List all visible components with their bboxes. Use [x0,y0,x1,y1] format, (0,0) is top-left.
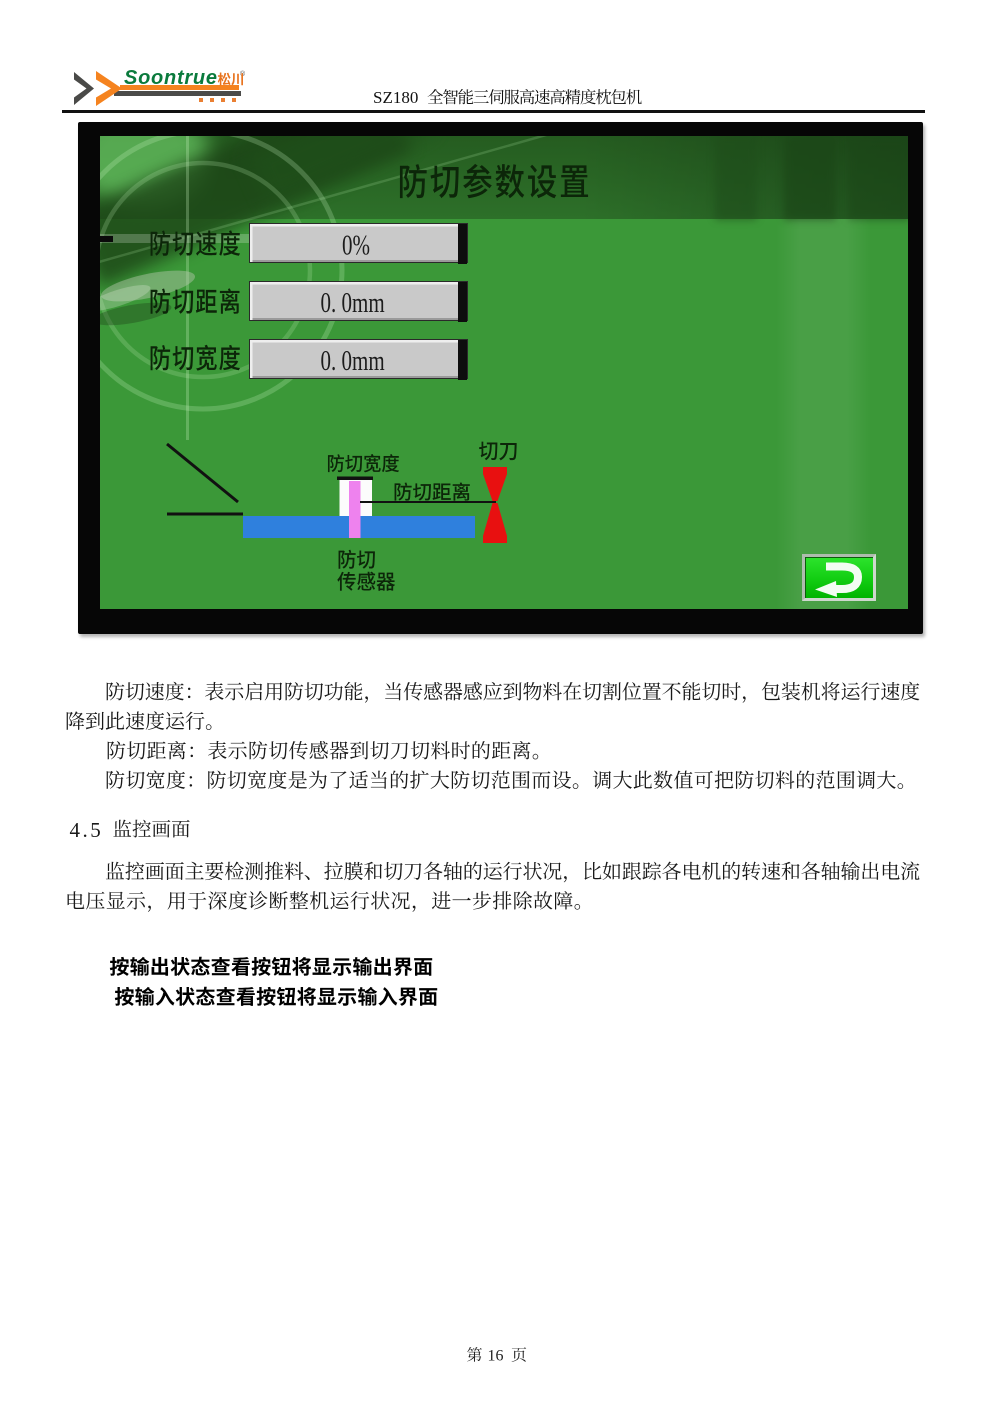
svg-text:Soontrue: Soontrue [124,67,217,89]
svg-text:®: ® [240,70,246,78]
svg-text:0. 0mm: 0. 0mm [321,345,385,377]
svg-text:SZ180: SZ180 [373,88,418,107]
svg-text:16: 16 [488,1348,504,1365]
svg-text:0. 0mm: 0. 0mm [321,287,385,319]
svg-text:4.5: 4.5 [70,818,104,842]
svg-text:0%: 0% [342,229,370,261]
